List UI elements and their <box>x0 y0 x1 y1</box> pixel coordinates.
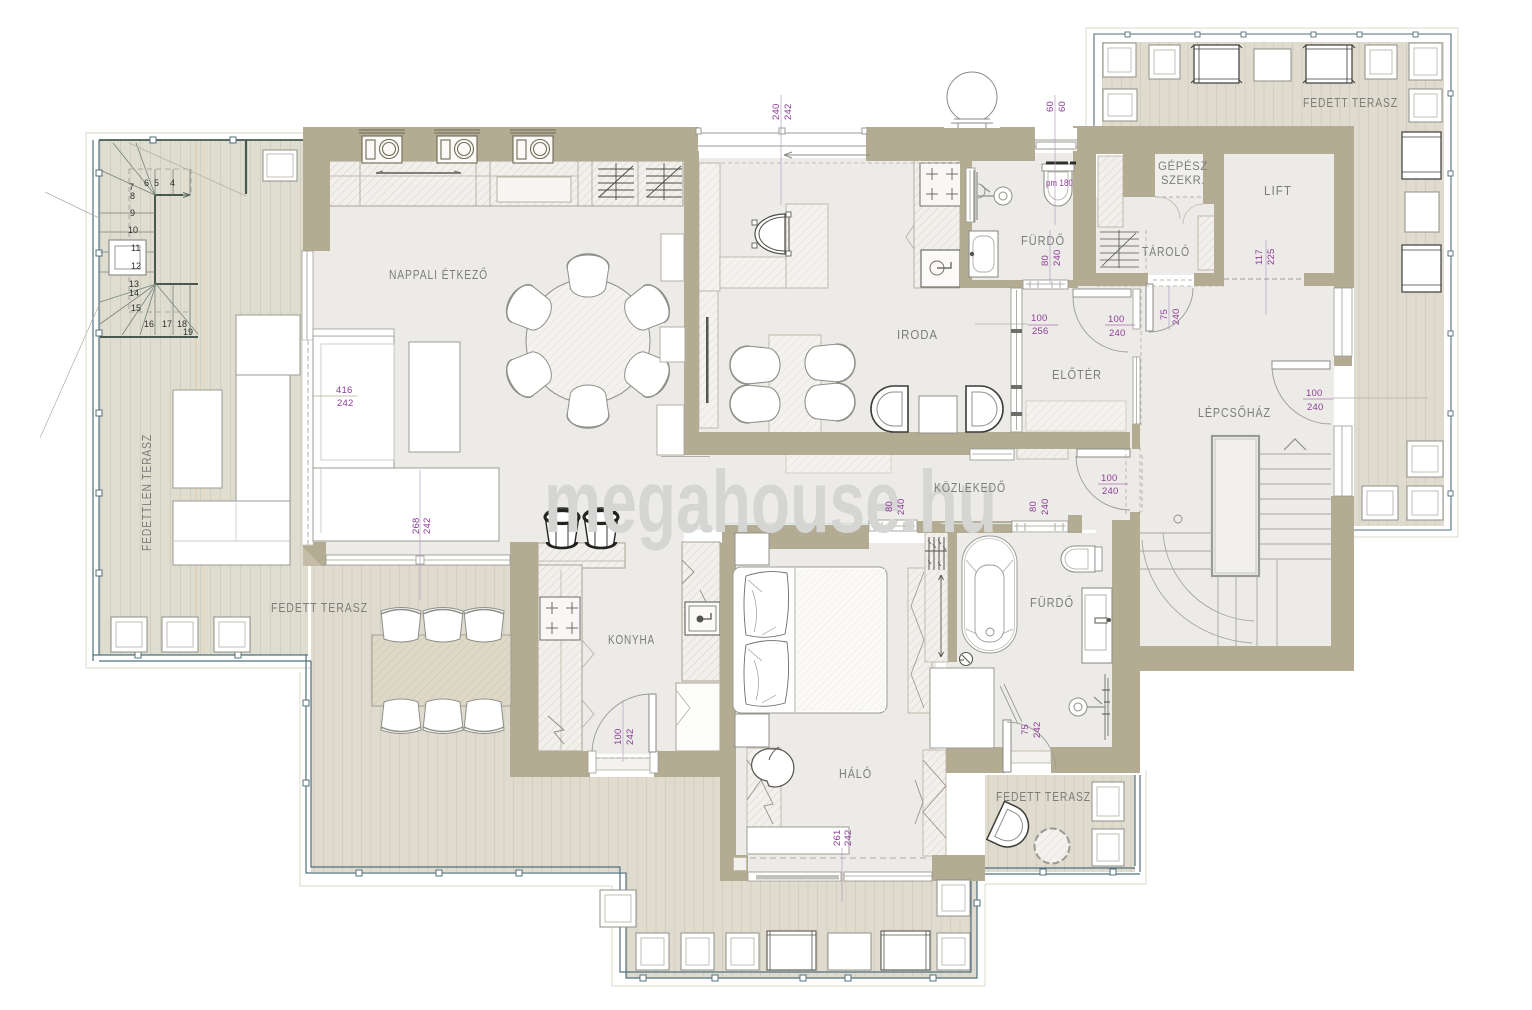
svg-text:HÁLÓ: HÁLÓ <box>839 766 872 781</box>
svg-text:15: 15 <box>131 303 141 313</box>
svg-text:80: 80 <box>884 501 895 512</box>
svg-text:11: 11 <box>131 243 140 253</box>
svg-text:256: 256 <box>1032 326 1048 337</box>
svg-text:117: 117 <box>1254 249 1265 265</box>
svg-text:242: 242 <box>422 518 433 534</box>
svg-text:242: 242 <box>625 729 636 745</box>
svg-text:75: 75 <box>1159 309 1170 320</box>
svg-text:100: 100 <box>1101 473 1117 484</box>
svg-text:225: 225 <box>1266 249 1277 265</box>
svg-text:242: 242 <box>337 398 353 409</box>
svg-text:240: 240 <box>1171 309 1182 325</box>
svg-text:FEDETT TERASZ: FEDETT TERASZ <box>996 789 1091 804</box>
svg-text:16: 16 <box>144 319 154 329</box>
svg-text:240: 240 <box>1307 402 1323 413</box>
svg-text:80: 80 <box>1040 255 1051 266</box>
svg-text:60: 60 <box>1045 101 1056 112</box>
svg-text:261: 261 <box>832 830 843 846</box>
svg-text:14: 14 <box>129 288 139 298</box>
svg-text:8: 8 <box>130 191 135 201</box>
svg-text:6: 6 <box>144 178 149 188</box>
svg-text:NAPPALI ÉTKEZŐ: NAPPALI ÉTKEZŐ <box>389 267 488 282</box>
svg-text:GÉPÉSZ: GÉPÉSZ <box>1158 160 1208 173</box>
svg-text:FEDETT TERASZ: FEDETT TERASZ <box>271 600 368 615</box>
svg-text:FÜRDŐ: FÜRDŐ <box>1021 233 1065 248</box>
svg-text:5: 5 <box>154 178 159 188</box>
svg-text:75: 75 <box>1020 724 1031 735</box>
svg-text:IRODA: IRODA <box>897 327 938 342</box>
svg-text:100: 100 <box>1306 388 1322 399</box>
svg-text:TÁROLÓ: TÁROLÓ <box>1142 244 1190 259</box>
svg-text:pm 180: pm 180 <box>1046 178 1073 189</box>
svg-text:240: 240 <box>771 104 782 120</box>
svg-text:FÜRDŐ: FÜRDŐ <box>1030 595 1074 610</box>
svg-text:4: 4 <box>170 178 175 188</box>
svg-text:LIFT: LIFT <box>1264 183 1292 198</box>
svg-text:242: 242 <box>843 830 854 846</box>
svg-text:240: 240 <box>1102 486 1118 497</box>
svg-text:10: 10 <box>128 225 138 235</box>
svg-text:19: 19 <box>183 327 193 337</box>
svg-text:ELŐTÉR: ELŐTÉR <box>1052 367 1102 382</box>
svg-text:100: 100 <box>1108 314 1124 325</box>
svg-text:100: 100 <box>1031 313 1047 324</box>
svg-text:240: 240 <box>1052 250 1063 266</box>
svg-text:17: 17 <box>162 319 172 329</box>
svg-text:FEDETTLEN TERASZ: FEDETTLEN TERASZ <box>139 434 154 551</box>
svg-text:416: 416 <box>336 385 352 396</box>
svg-text:80: 80 <box>1028 501 1039 512</box>
svg-text:12: 12 <box>131 261 141 271</box>
svg-text:SZEKR.: SZEKR. <box>1161 175 1205 187</box>
svg-text:240: 240 <box>1040 499 1051 515</box>
svg-text:FEDETT TERASZ: FEDETT TERASZ <box>1303 95 1398 110</box>
svg-text:megahouse.hu: megahouse.hu <box>544 452 997 551</box>
svg-text:240: 240 <box>1109 328 1125 339</box>
svg-text:240: 240 <box>896 499 907 515</box>
svg-text:100: 100 <box>613 729 624 745</box>
svg-text:LÉPCSŐHÁZ: LÉPCSŐHÁZ <box>1198 405 1271 420</box>
svg-text:KÖZLEKEDŐ: KÖZLEKEDŐ <box>934 480 1006 495</box>
svg-text:60: 60 <box>1057 101 1068 112</box>
svg-text:9: 9 <box>130 208 135 218</box>
svg-text:242: 242 <box>783 104 794 120</box>
svg-text:242: 242 <box>1032 722 1043 738</box>
svg-text:KONYHA: KONYHA <box>608 632 655 647</box>
